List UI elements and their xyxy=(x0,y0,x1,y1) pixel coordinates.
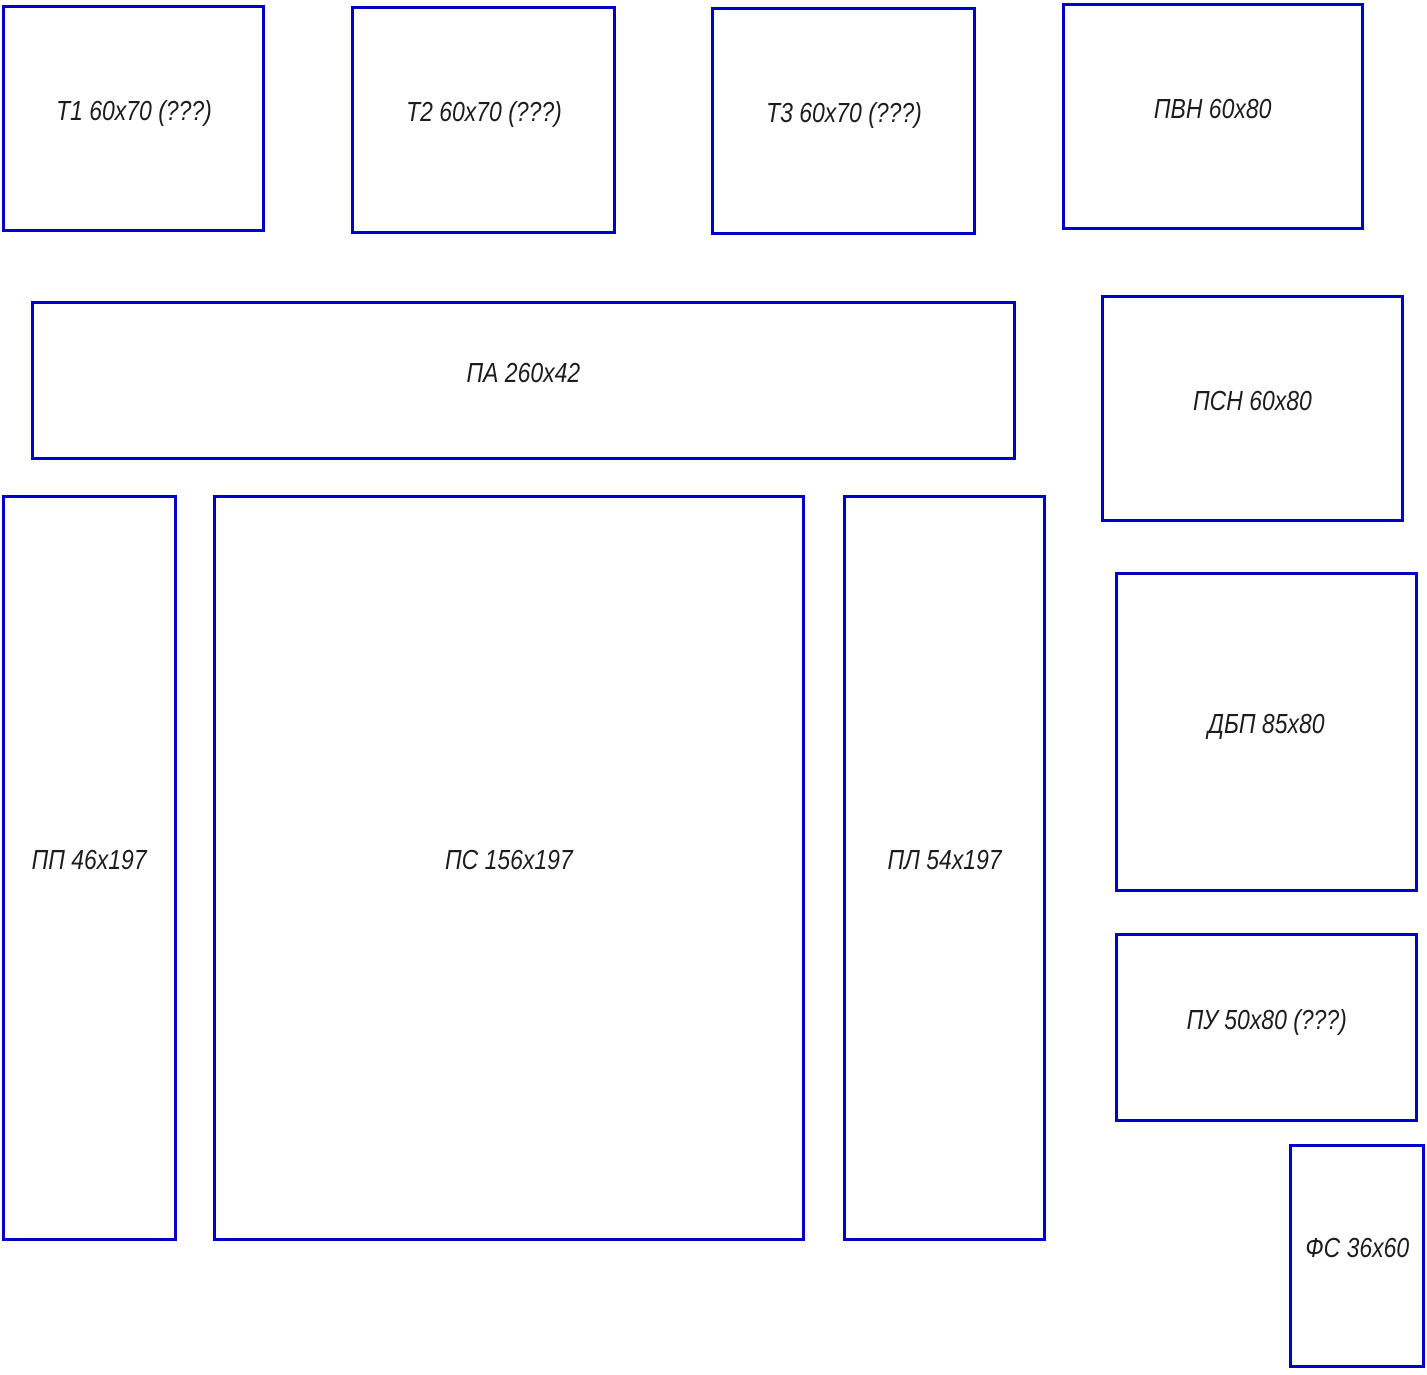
part-label-t3: Т3 60х70 (???) xyxy=(766,97,922,129)
part-label-fs: ФС 36х60 xyxy=(1305,1232,1409,1264)
part-box-t2[interactable]: Т2 60х70 (???) xyxy=(351,6,616,234)
part-label-t1: Т1 60х70 (???) xyxy=(56,95,212,127)
part-label-pu: ПУ 50х80 (???) xyxy=(1186,1004,1346,1036)
part-box-t3[interactable]: Т3 60х70 (???) xyxy=(711,7,976,235)
part-box-dbp[interactable]: ДБП 85х80 xyxy=(1115,572,1418,892)
part-box-pp[interactable]: ПП 46х197 xyxy=(2,495,177,1241)
part-label-t2: Т2 60х70 (???) xyxy=(406,96,562,128)
part-box-pvn[interactable]: ПВН 60х80 xyxy=(1062,3,1364,230)
cutting-layout-canvas: Т1 60х70 (???) Т2 60х70 (???) Т3 60х70 (… xyxy=(0,0,1427,1375)
part-label-dbp: ДБП 85х80 xyxy=(1208,708,1325,740)
part-label-pvn: ПВН 60х80 xyxy=(1154,93,1271,125)
part-label-pa: ПА 260х42 xyxy=(467,357,581,389)
part-box-pa[interactable]: ПА 260х42 xyxy=(31,301,1016,460)
part-label-psn: ПСН 60х80 xyxy=(1193,385,1312,417)
part-box-fs[interactable]: ФС 36х60 xyxy=(1289,1144,1425,1368)
part-box-pu[interactable]: ПУ 50х80 (???) xyxy=(1115,933,1418,1122)
part-label-pp: ПП 46х197 xyxy=(32,844,147,876)
part-box-t1[interactable]: Т1 60х70 (???) xyxy=(2,5,265,232)
part-box-pl[interactable]: ПЛ 54х197 xyxy=(843,495,1046,1241)
part-label-ps: ПС 156х197 xyxy=(445,844,573,876)
part-box-ps[interactable]: ПС 156х197 xyxy=(213,495,805,1241)
part-label-pl: ПЛ 54х197 xyxy=(887,844,1001,876)
part-box-psn[interactable]: ПСН 60х80 xyxy=(1101,295,1404,522)
